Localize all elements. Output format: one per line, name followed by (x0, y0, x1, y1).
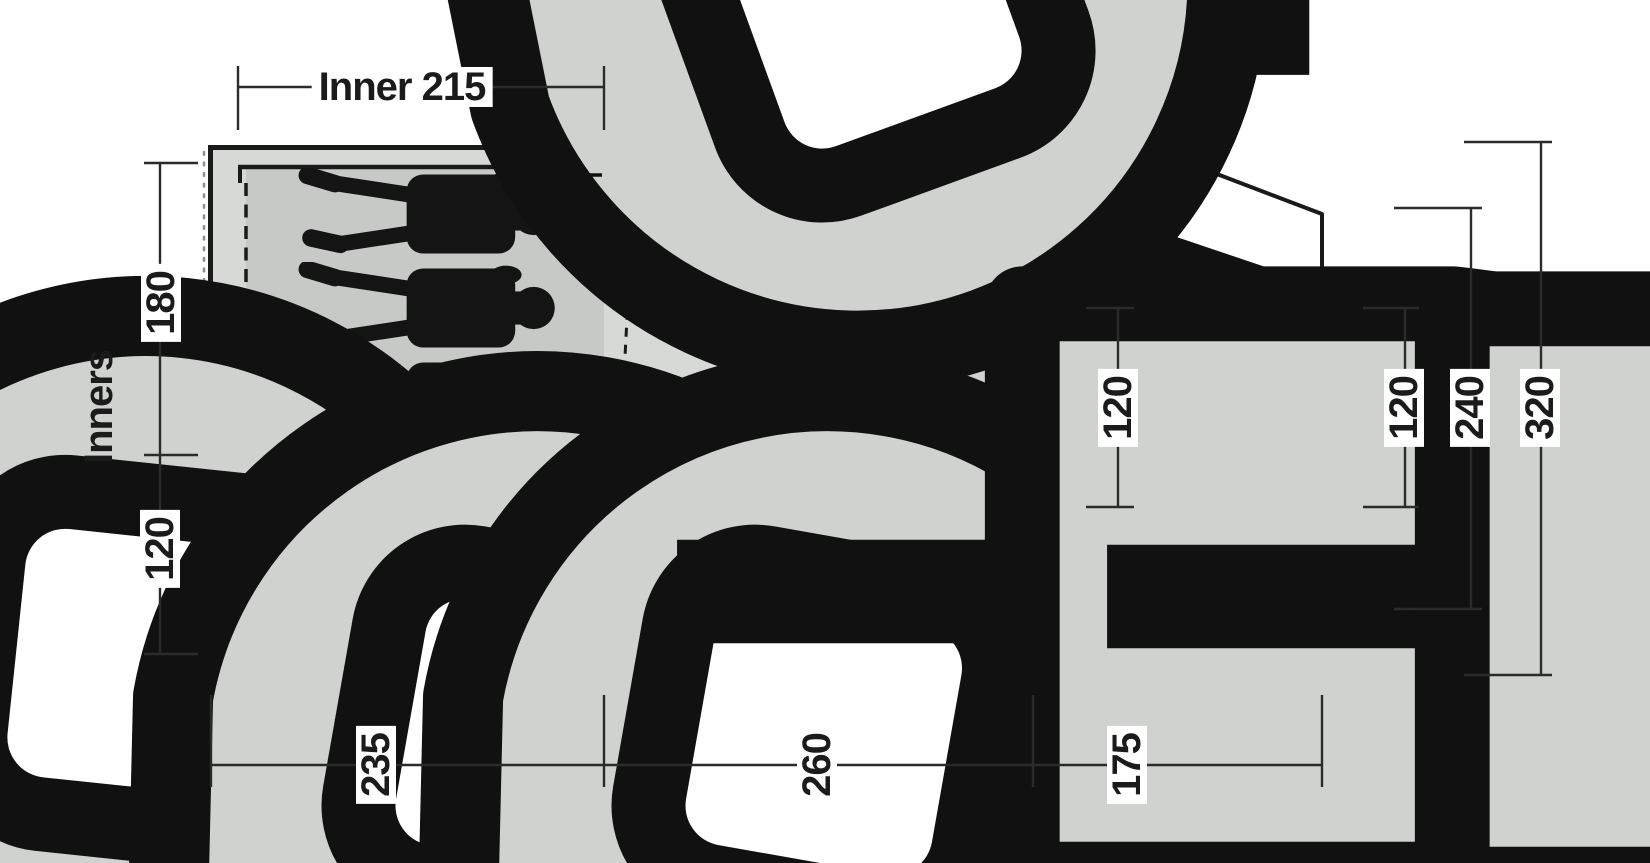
label-section-235: 235 (356, 726, 396, 804)
label-total-320: 320 (1520, 369, 1560, 447)
tent-floorplan-diagram: Inner 215 Inners 180 120 235 260 175 120… (0, 0, 1650, 863)
label-door-main-120: 120 (1098, 369, 1138, 447)
label-section-260: 260 (797, 726, 837, 804)
label-porch-240: 240 (1450, 369, 1490, 447)
label-inner-depth-120: 120 (140, 510, 180, 588)
label-inner-width: Inner 215 (312, 67, 493, 107)
label-door-porch-120: 120 (1384, 369, 1424, 447)
label-section-175: 175 (1107, 726, 1147, 804)
label-inners: Inners (79, 343, 119, 471)
label-inner-depth-180: 180 (141, 264, 181, 342)
